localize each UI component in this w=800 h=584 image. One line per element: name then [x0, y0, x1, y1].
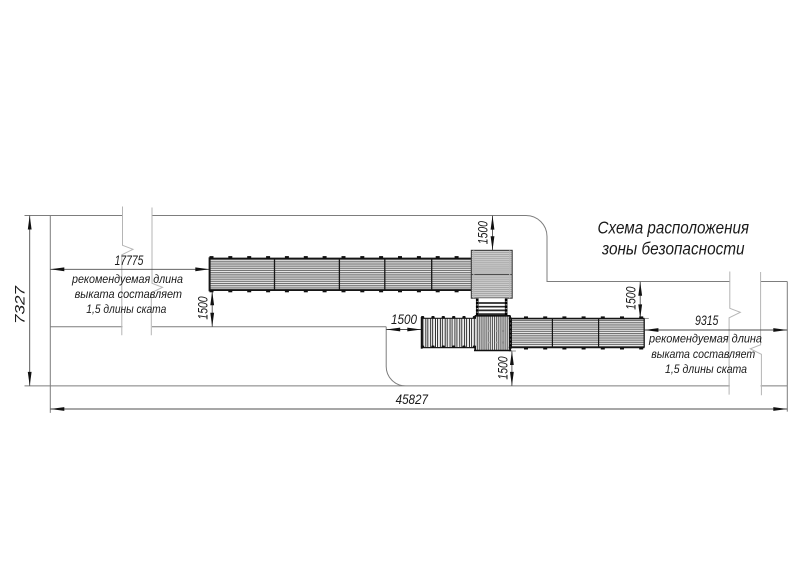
svg-text:45827: 45827: [396, 391, 429, 407]
svg-text:рекомендуемая длина: рекомендуемая длина: [71, 272, 183, 286]
svg-text:1500: 1500: [475, 221, 491, 244]
svg-text:выката составляет: выката составляет: [75, 287, 182, 301]
svg-text:17775: 17775: [115, 252, 144, 268]
svg-text:рекомендуемая длина: рекомендуемая длина: [648, 332, 762, 346]
svg-text:Схема расположения: Схема расположения: [598, 218, 750, 238]
svg-text:7327: 7327: [11, 285, 27, 324]
svg-text:1,5 длины ската: 1,5 длины ската: [665, 362, 747, 376]
svg-text:1500: 1500: [494, 356, 510, 379]
svg-text:выката составляет: выката составляет: [651, 347, 755, 361]
svg-text:1500: 1500: [622, 286, 638, 309]
svg-text:1,5 длины ската: 1,5 длины ската: [86, 302, 166, 316]
svg-text:1500: 1500: [195, 296, 211, 319]
svg-text:1500: 1500: [391, 311, 417, 327]
svg-text:зоны безопасности: зоны безопасности: [601, 239, 745, 259]
svg-text:9315: 9315: [695, 312, 719, 328]
